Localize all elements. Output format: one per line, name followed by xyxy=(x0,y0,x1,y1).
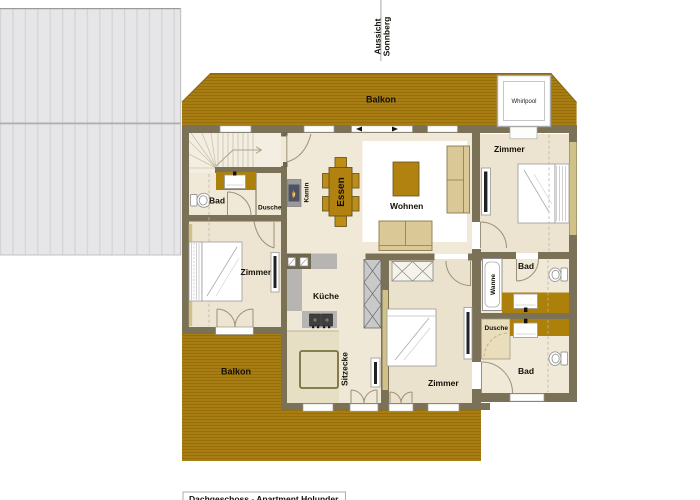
svg-text:Balkon: Balkon xyxy=(221,367,251,377)
svg-text:Dusche: Dusche xyxy=(258,205,282,212)
svg-text:Zimmer: Zimmer xyxy=(494,144,525,154)
svg-text:Zimmer: Zimmer xyxy=(241,267,272,277)
svg-text:Essen: Essen xyxy=(336,177,347,206)
svg-text:Sitzecke: Sitzecke xyxy=(340,352,350,386)
svg-text:Wohnen: Wohnen xyxy=(390,201,423,211)
svg-text:Zimmer: Zimmer xyxy=(428,378,459,388)
svg-text:Küche: Küche xyxy=(313,291,339,301)
svg-text:Sonnberg: Sonnberg xyxy=(382,17,392,57)
svg-text:Dachgeschoss - Apartment Holun: Dachgeschoss - Apartment Holunder xyxy=(189,494,339,500)
svg-text:Kamin: Kamin xyxy=(304,183,311,203)
svg-text:Whirlpool: Whirlpool xyxy=(511,99,536,105)
svg-text:Dusche: Dusche xyxy=(485,325,509,332)
svg-text:Balkon: Balkon xyxy=(366,95,396,105)
svg-text:Bad: Bad xyxy=(518,366,534,376)
svg-text:Bad: Bad xyxy=(209,196,225,206)
svg-text:Bad: Bad xyxy=(518,261,534,271)
svg-text:Wanne: Wanne xyxy=(490,274,497,295)
